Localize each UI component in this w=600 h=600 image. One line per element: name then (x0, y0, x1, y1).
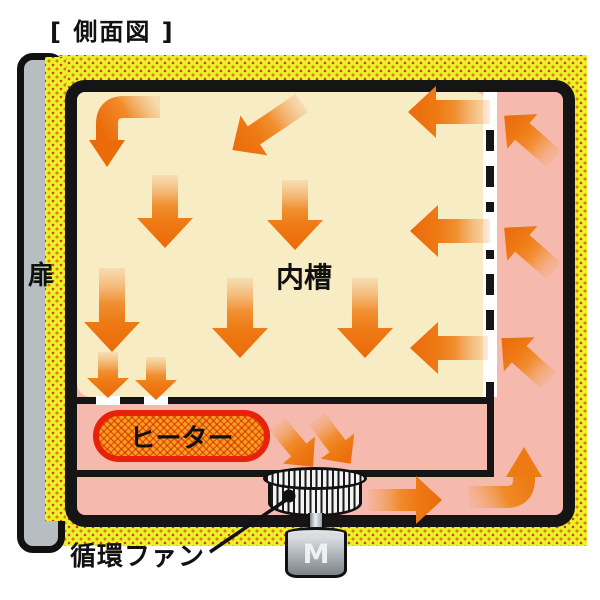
inner-chamber (77, 92, 484, 397)
heater-label: ヒーター (129, 418, 233, 455)
chamber-bottom-wall (65, 397, 494, 404)
circulation-fan-label: 循環ファン (70, 536, 205, 573)
diagram-title: [ 側面図 ] (50, 12, 175, 47)
air-slot (144, 396, 168, 405)
side-view-diagram: [ 側面図 ] 扉 ヒーター 内槽 M 循環ファン (0, 0, 600, 600)
heater-compartment-divider (487, 397, 494, 477)
perforated-partition (483, 92, 497, 397)
motor: M (285, 533, 347, 578)
air-slot (96, 396, 120, 405)
inner-chamber-label: 内槽 (254, 256, 354, 296)
door-label: 扉 (17, 255, 65, 292)
fan-drum-top (263, 467, 367, 490)
heater: ヒーター (93, 410, 270, 462)
motor-label: M (303, 539, 330, 570)
